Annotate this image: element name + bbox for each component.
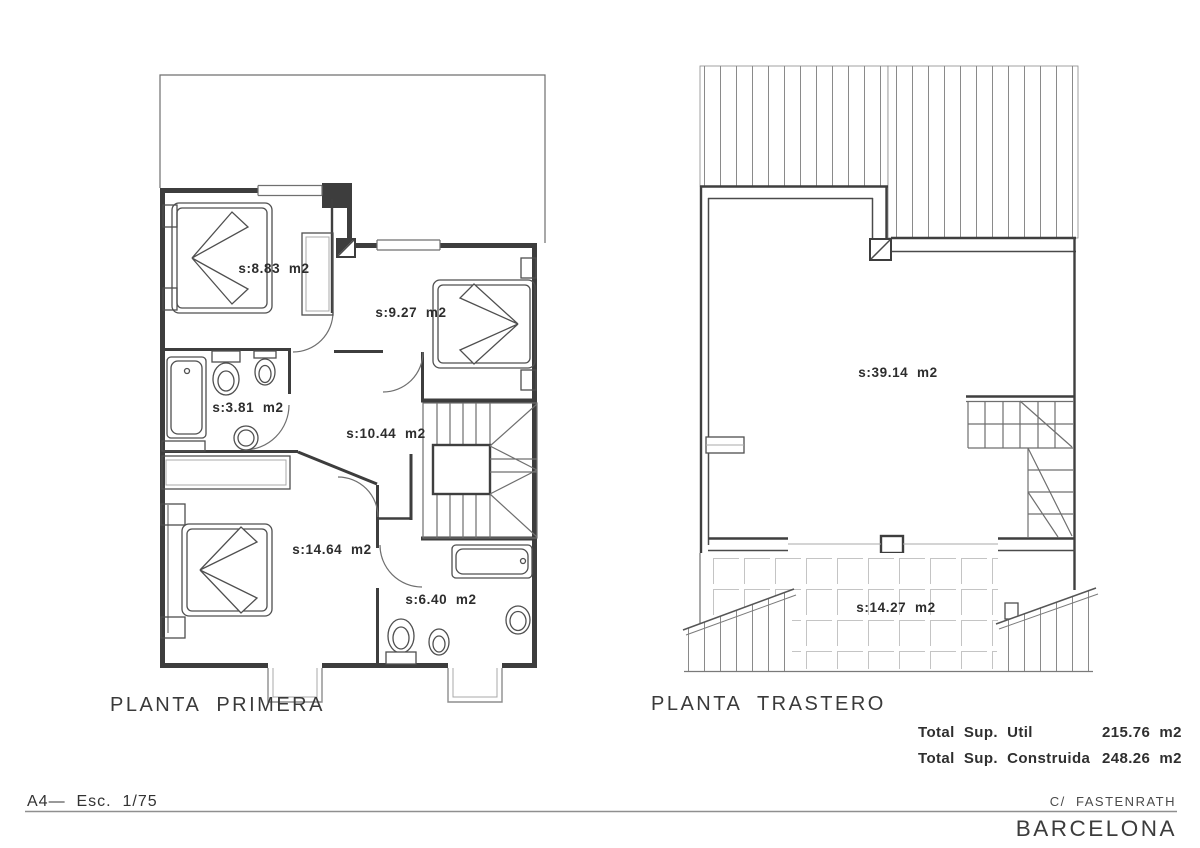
floor-plan-sheet: s:8.83 m2 s:9.27 m2 s:3.81 m2 s:10.44 m2… [0,0,1200,848]
room-area-label-bathroom-2: s:6.40 m2 [405,592,476,607]
toilet-icon [386,619,416,664]
sink-icon [234,426,258,450]
plan-title-primera: PLANTA PRIMERA [110,694,325,716]
chimney-icon [870,239,891,260]
sheet-scale-label: A4— Esc. 1/75 [27,793,158,810]
total-util-value: 215.76 m2 [1102,724,1182,741]
chimney-icon [337,239,355,257]
room-area-label-bedroom-1: s:8.83 m2 [238,261,309,276]
plan-title-trastero: PLANTA TRASTERO [651,693,886,715]
total-construida-label: Total Sup. Construida [918,750,1091,767]
total-util-label: Total Sup. Util [918,724,1033,741]
room-area-label-bedroom-3: s:14.64 m2 [292,542,371,557]
sink-icon [506,606,530,634]
toilet-icon [212,351,240,395]
room-area-label-bedroom-2: s:9.27 m2 [375,305,446,320]
room-area-label-bathroom-1: s:3.81 m2 [212,400,283,415]
room-area-label-storage: s:39.14 m2 [858,365,937,380]
total-construida-value: 248.26 m2 [1102,750,1182,767]
room-area-label-hall: s:10.44 m2 [346,426,425,441]
window-stub [706,437,744,453]
street-label: C/ FASTENRATH [1050,794,1176,809]
city-label: BARCELONA [1016,816,1177,841]
bidet-icon [429,629,449,655]
room-area-label-terrace: s:14.27 m2 [856,600,935,615]
